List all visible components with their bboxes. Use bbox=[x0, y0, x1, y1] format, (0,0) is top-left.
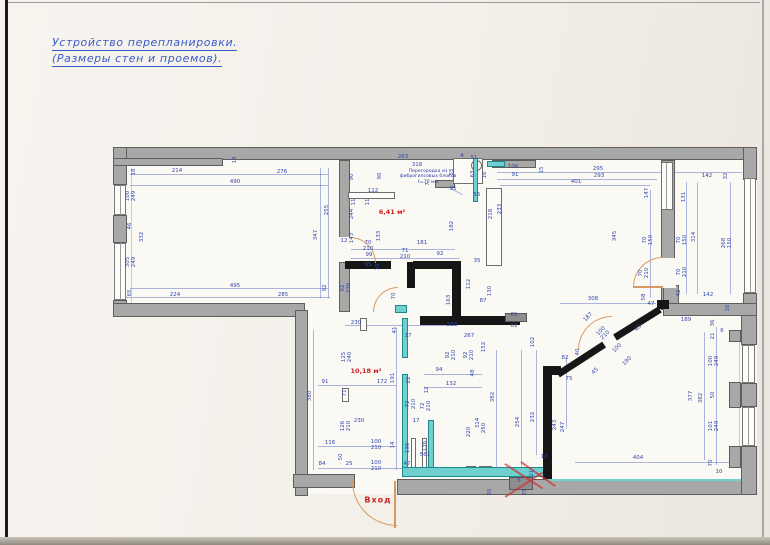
dimension-label: 25 bbox=[346, 462, 353, 468]
dimension-label: 382 bbox=[699, 393, 705, 404]
dimension-line bbox=[396, 328, 397, 470]
dimension-label: 345 bbox=[613, 231, 619, 242]
dimension-label: 136 bbox=[423, 441, 429, 452]
dimension-label: 143 bbox=[350, 233, 356, 244]
dimension-label: 70 bbox=[392, 293, 398, 300]
dimension-label: 99 bbox=[366, 253, 373, 259]
dimension-label: 142 bbox=[702, 174, 713, 180]
dimension-label: 163 bbox=[447, 295, 453, 306]
dimension-label: 71 210 bbox=[400, 249, 411, 261]
dimension-label: 189 bbox=[681, 318, 692, 324]
dimension-label: 65 bbox=[128, 290, 134, 297]
dimension-label: 15 bbox=[540, 167, 546, 174]
dimension-label: 55 bbox=[474, 193, 481, 199]
dimension-label: 32 bbox=[724, 173, 730, 180]
scan-edge-bottom bbox=[0, 537, 770, 545]
scan-edge-left bbox=[5, 0, 8, 545]
title-line-2: (Размеры стен и проемов). bbox=[52, 52, 222, 67]
dimension-label: 100 249 bbox=[126, 191, 138, 202]
load-bearing-wall bbox=[113, 158, 223, 166]
window-glass-line bbox=[748, 407, 749, 446]
dimension-label: 70 bbox=[709, 460, 715, 467]
dimension-label: 71 bbox=[343, 390, 349, 397]
new-wall bbox=[543, 366, 552, 479]
load-bearing-wall bbox=[295, 310, 308, 496]
dimension-label: 490 bbox=[230, 180, 241, 186]
dimension-label: 11 bbox=[352, 199, 358, 206]
dimension-label: 47 bbox=[648, 302, 655, 308]
dimension-label: 106 bbox=[508, 165, 519, 171]
dimension-label: 61 bbox=[511, 324, 518, 330]
dimension-label: 314 bbox=[692, 232, 698, 243]
dimension-label: 70 150 bbox=[643, 235, 655, 246]
dimension-label: 35 bbox=[474, 259, 481, 265]
dimension-label: 10 bbox=[716, 470, 723, 476]
dimension-label: 18 bbox=[233, 157, 239, 164]
dimension-label: 14 bbox=[391, 442, 397, 449]
dimension-label: 87 bbox=[480, 299, 487, 305]
dimension-label: 404 bbox=[633, 456, 644, 462]
room-area-label: 10,18 м² bbox=[351, 367, 382, 375]
dimension-label: 17 bbox=[405, 334, 412, 340]
dimension-label: 100 249 bbox=[709, 356, 721, 367]
dimension-label: 48 bbox=[471, 370, 477, 377]
dimension-label: 401 bbox=[571, 180, 582, 186]
dimension-label: 5 bbox=[517, 479, 521, 485]
dimension-label: 91 bbox=[322, 380, 329, 386]
dimension-label: 561 bbox=[420, 453, 431, 459]
dimension-line bbox=[328, 168, 329, 298]
dimension-label: 223 bbox=[447, 323, 458, 329]
dimension-label: 214 bbox=[172, 169, 183, 175]
dimension-label: 152 bbox=[482, 342, 488, 353]
dimension-label: 247 bbox=[561, 422, 567, 433]
dimension-label: 21 bbox=[530, 470, 536, 477]
dimension-label: 41 bbox=[393, 327, 399, 334]
light-partition bbox=[661, 162, 673, 210]
dimension-label: 308 bbox=[588, 297, 599, 303]
dimension-label: 25 bbox=[488, 489, 494, 496]
dimension-label: 63 bbox=[471, 171, 477, 178]
new-wall bbox=[407, 262, 415, 288]
dimension-label: 285 bbox=[278, 293, 289, 299]
dimension-label: 61 bbox=[511, 313, 518, 319]
dimension-label: 250 bbox=[482, 423, 488, 434]
teal-mark-line bbox=[547, 479, 741, 481]
dimension-label: 347 bbox=[314, 230, 320, 241]
dimension-label: 112 bbox=[467, 279, 473, 290]
dimension-label: 100 210 bbox=[371, 440, 382, 452]
dimension-label: 130 bbox=[488, 286, 494, 297]
dimension-label: 102 bbox=[531, 337, 537, 348]
dimension-label: 12 bbox=[425, 387, 431, 394]
dimension-label: 136 bbox=[406, 443, 412, 454]
dimension-label: 10 bbox=[376, 264, 382, 271]
dimension-label: 377 bbox=[689, 391, 695, 402]
dimension-label: 218 bbox=[489, 209, 495, 220]
dimension-label: 147 bbox=[645, 188, 651, 199]
dimension-label: 293 bbox=[594, 174, 605, 180]
light-partition bbox=[486, 188, 502, 266]
dimension-label: 182 bbox=[450, 221, 456, 232]
room-area-label: Вход bbox=[364, 496, 391, 505]
dimension-label: 18 bbox=[132, 169, 138, 176]
dimension-label: 70 150 bbox=[677, 235, 689, 246]
dimension-label: 84 bbox=[319, 462, 326, 468]
load-bearing-wall bbox=[743, 147, 757, 180]
load-bearing-wall bbox=[397, 479, 757, 495]
dimension-line bbox=[320, 168, 321, 298]
dimension-label: 132 bbox=[446, 382, 457, 388]
dimension-label: 22 bbox=[407, 377, 413, 384]
dimension-label: 90 bbox=[350, 174, 356, 181]
dimension-label: 181 bbox=[417, 241, 428, 247]
dimension-label: 126 210 bbox=[341, 421, 353, 432]
drawing-title: Устройство перепланировки. (Размеры стен… bbox=[52, 36, 237, 68]
window-glass-line bbox=[120, 185, 121, 215]
dimension-label: 382 bbox=[491, 392, 497, 403]
load-bearing-wall bbox=[113, 147, 127, 185]
dimension-label: 92 bbox=[323, 285, 329, 292]
dimension-line bbox=[536, 350, 537, 455]
dimension-label: 101 249 bbox=[709, 421, 721, 432]
dimension-label: 75 bbox=[566, 377, 573, 383]
dimension-label: 230 bbox=[354, 419, 365, 425]
scan-edge-right bbox=[762, 0, 764, 545]
dimension-label: 35 bbox=[450, 187, 457, 193]
dimension-label: 267 bbox=[464, 334, 475, 340]
dimension-label: 232 bbox=[531, 412, 537, 423]
load-bearing-wall bbox=[741, 446, 757, 495]
dimension-label: 47 bbox=[404, 462, 411, 468]
dimension-label: 95 bbox=[365, 263, 372, 269]
dimension-label: 92 bbox=[437, 252, 444, 258]
door-leaf bbox=[633, 286, 663, 288]
dimension-label: 112 bbox=[368, 189, 379, 195]
dimension-label: 116 bbox=[325, 441, 336, 447]
dimension-label: 42 bbox=[677, 290, 683, 297]
load-bearing-wall bbox=[663, 303, 757, 316]
dimension-label: 91 bbox=[512, 173, 519, 179]
dimension-label: 191 bbox=[391, 373, 397, 384]
dimension-label: 220 bbox=[467, 427, 473, 438]
dimension-label: 100 210 bbox=[371, 461, 382, 473]
load-bearing-wall bbox=[293, 474, 355, 488]
new-wall bbox=[452, 261, 461, 319]
dimension-label: 4 bbox=[460, 154, 464, 160]
dimension-label: 131 bbox=[682, 192, 688, 203]
dimension-label: 12 bbox=[341, 239, 348, 245]
dimension-label: 6 bbox=[720, 329, 724, 335]
dimension-label: 244 bbox=[350, 209, 356, 220]
dimension-line bbox=[130, 174, 328, 175]
dimension-label: 16 bbox=[483, 172, 489, 179]
dimension-label: 268 150 bbox=[722, 238, 734, 249]
dimension-label: 36 bbox=[711, 320, 717, 327]
dimension-label: 125 240 bbox=[342, 352, 354, 363]
load-bearing-wall bbox=[113, 215, 127, 243]
load-bearing-wall bbox=[729, 330, 741, 342]
dimension-label: 21 bbox=[711, 333, 717, 340]
dimension-line bbox=[496, 350, 497, 468]
dimension-line bbox=[560, 303, 656, 304]
new-teal-partition bbox=[402, 374, 408, 474]
dimension-label: 224 bbox=[170, 293, 181, 299]
dimension-label: 230 bbox=[351, 321, 362, 327]
dimension-label: 332 bbox=[140, 232, 146, 243]
dimension-label: 305 249 bbox=[126, 257, 138, 268]
dimension-label: 12 bbox=[541, 455, 548, 461]
dimension-label: 70 210 bbox=[677, 267, 689, 278]
dimension-label: 50 bbox=[711, 392, 717, 399]
title-line-1: Устройство перепланировки. bbox=[52, 36, 237, 51]
load-bearing-wall bbox=[741, 383, 757, 407]
dimension-label: 92 210 bbox=[446, 350, 458, 361]
dimension-label: 25 bbox=[523, 489, 529, 496]
dimension-label: 58 bbox=[642, 294, 648, 301]
dimension-label: 46 bbox=[128, 223, 134, 230]
dimension-label: 495 bbox=[230, 284, 241, 290]
window-glass-line bbox=[750, 178, 751, 293]
load-bearing-wall bbox=[729, 382, 741, 408]
dimension-label: 90 bbox=[378, 173, 384, 180]
dimension-label: 133 bbox=[377, 231, 383, 242]
scan-edge-top bbox=[8, 2, 760, 3]
room-area-label: 6,41 м² bbox=[379, 208, 405, 216]
dimension-label: 11 bbox=[366, 199, 372, 206]
dimension-line bbox=[118, 297, 330, 298]
dimension-label: 172 bbox=[377, 380, 388, 386]
dimension-label: 40 bbox=[576, 349, 582, 356]
window-glass-line bbox=[748, 345, 749, 383]
dimension-label: 255 bbox=[325, 205, 331, 216]
new-teal-partition bbox=[487, 161, 505, 167]
scanned-page: Устройство перепланировки. (Размеры стен… bbox=[0, 0, 770, 545]
dimension-label: 17 bbox=[413, 419, 420, 425]
dimension-label: 142 bbox=[703, 293, 714, 299]
load-bearing-wall bbox=[339, 160, 350, 238]
dimension-label: 276 bbox=[277, 170, 288, 176]
dimension-line bbox=[318, 468, 404, 469]
dimension-label: 70 210 bbox=[639, 268, 651, 279]
dimension-label: 72 210 bbox=[406, 399, 418, 410]
closet-line bbox=[666, 163, 667, 209]
dimension-label: 62 230 bbox=[341, 283, 353, 294]
window-glass-line bbox=[120, 243, 121, 300]
dimension-line bbox=[521, 350, 522, 468]
dimension-label: 94 bbox=[436, 368, 443, 374]
dimension-label: 243 bbox=[553, 420, 559, 431]
dimension-label: 254 bbox=[516, 417, 522, 428]
dimension-label: 51 bbox=[471, 156, 478, 162]
dimension-label: 16 bbox=[726, 305, 732, 312]
dimension-label: 82 bbox=[562, 356, 569, 362]
partition-annotation: Перегородка из фиброгипсовых блоков t=70… bbox=[400, 169, 457, 185]
dimension-label: 92 210 bbox=[464, 350, 476, 361]
load-bearing-wall bbox=[729, 446, 741, 468]
dimension-label: 50 bbox=[339, 454, 345, 461]
dimension-label: 233 bbox=[498, 204, 504, 215]
load-bearing-wall bbox=[113, 303, 305, 317]
door-leaf bbox=[394, 481, 396, 528]
dimension-label: 380 bbox=[308, 391, 314, 402]
dimension-label: 72 210 bbox=[421, 401, 433, 412]
dimension-label: 318 bbox=[412, 163, 423, 169]
dimension-label: 263 bbox=[398, 155, 409, 161]
